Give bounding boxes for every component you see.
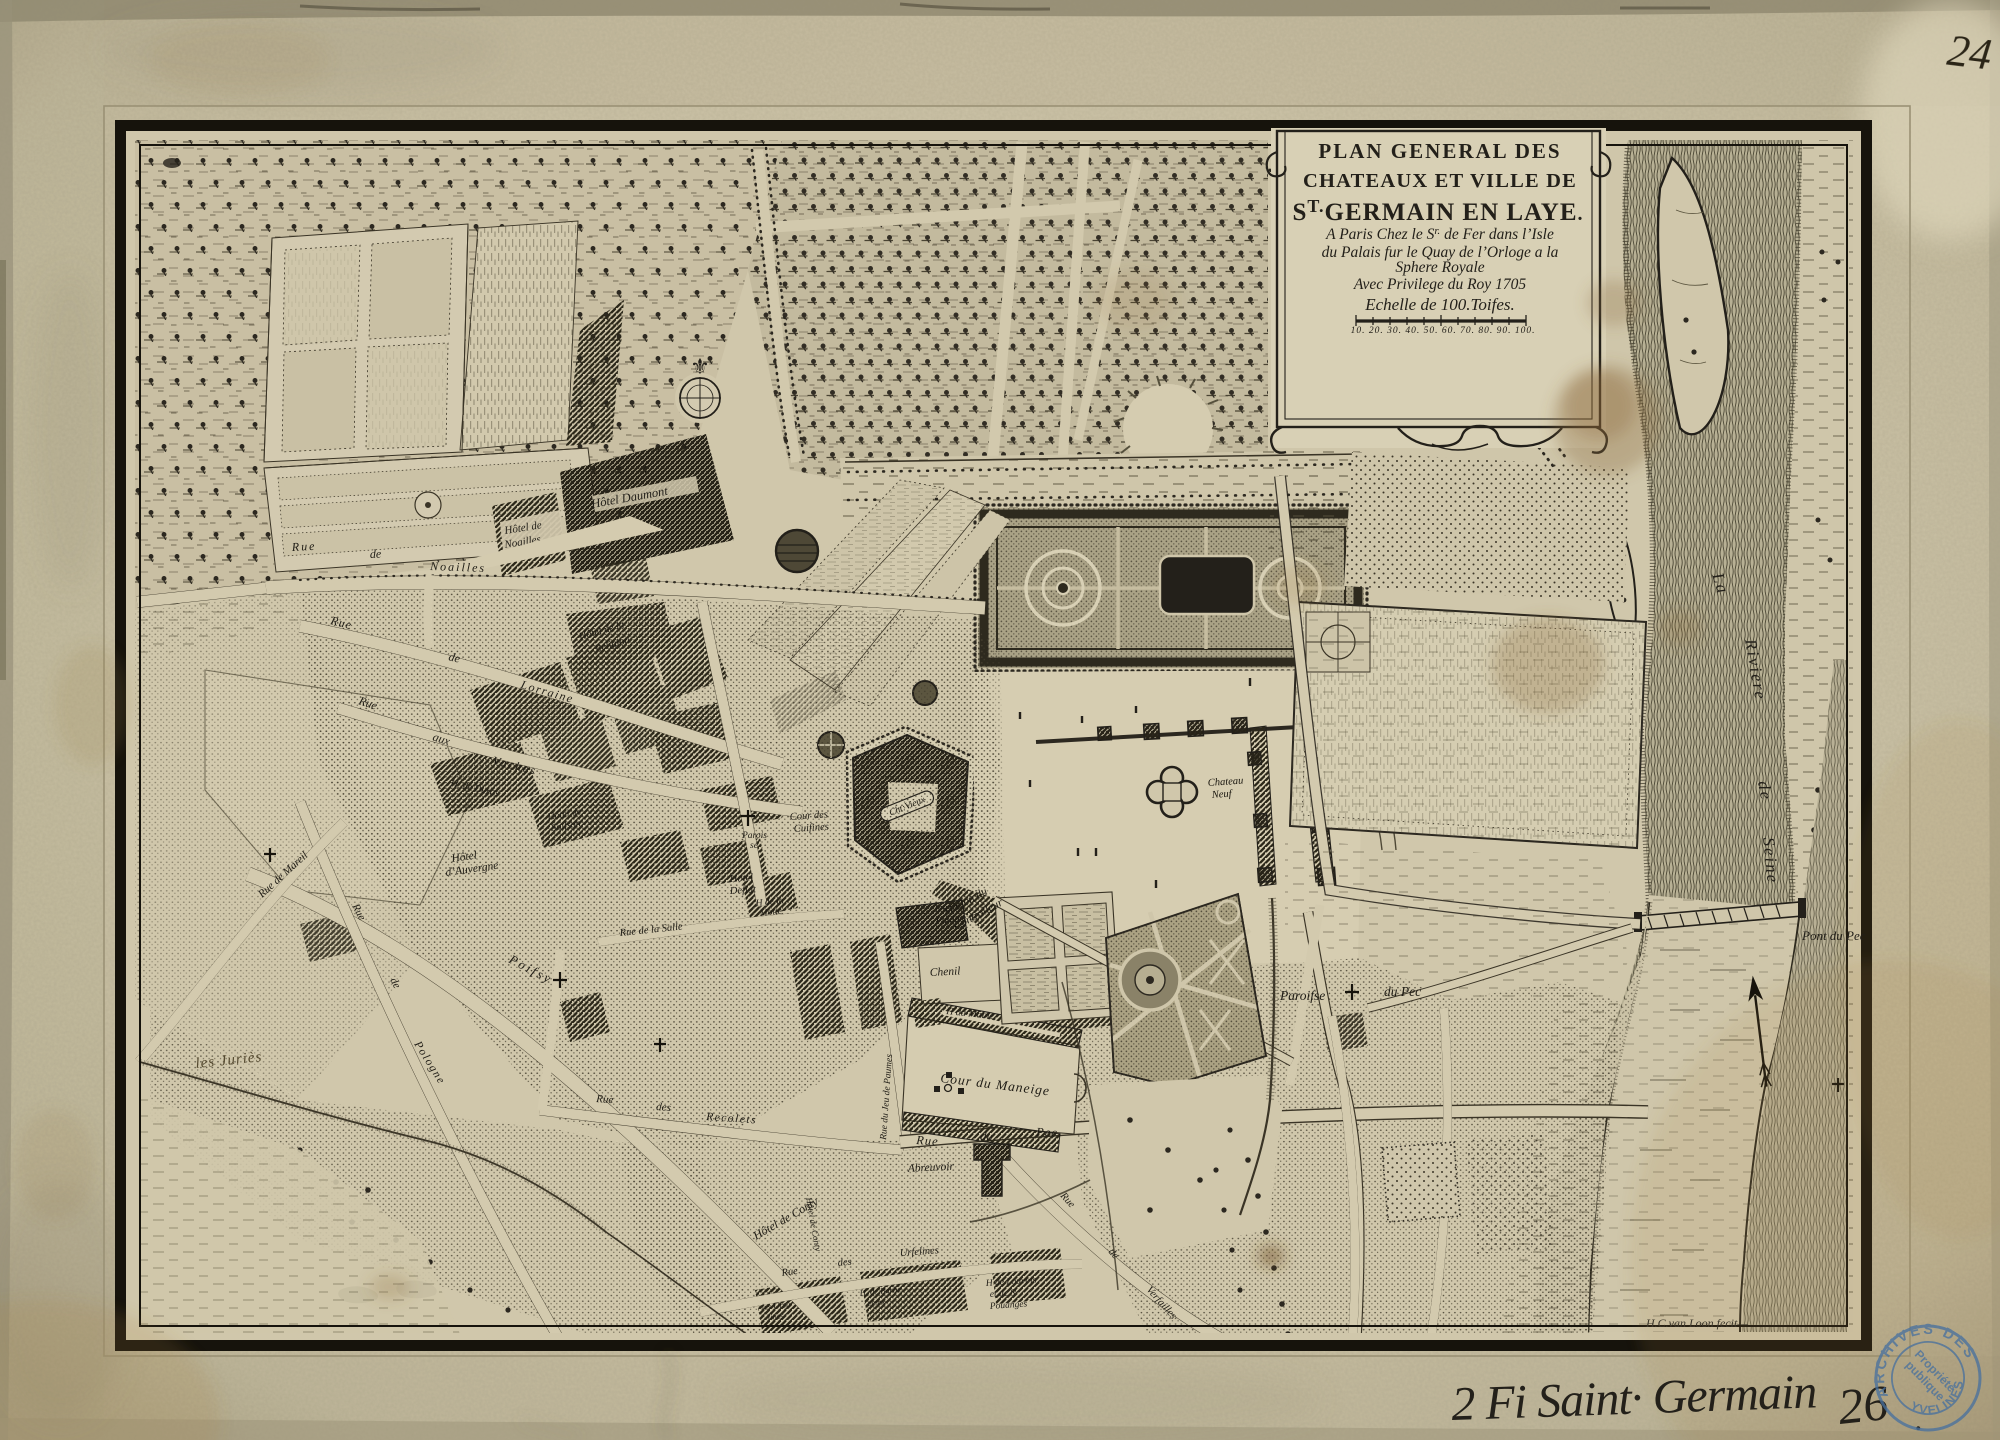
svg-text:Pec: Pec (1035, 1125, 1058, 1140)
svg-text:Paroifse: Paroifse (1279, 988, 1325, 1003)
svg-text:10. 20. 30. 40. 50. 60. 70. 80: 10. 20. 30. 40. 50. 60. 70. 80. 90. 100. (1351, 326, 1536, 336)
svg-text:PLAN GENERAL DES: PLAN GENERAL DES (1318, 139, 1561, 163)
svg-text:Noailles: Noailles (429, 559, 486, 575)
svg-text:Avec Privilege du Roy 1705: Avec Privilege du Roy 1705 (1353, 276, 1526, 293)
svg-text:du: du (980, 1129, 993, 1144)
svg-text:Rue: Rue (290, 539, 316, 554)
svg-text:Parois: Parois (741, 831, 767, 841)
svg-text:⚜: ⚜ (690, 354, 710, 379)
svg-text:zieux: zieux (866, 1296, 886, 1308)
svg-text:Rue: Rue (915, 1133, 939, 1149)
svg-text:se: se (750, 841, 758, 851)
svg-text:du Pec: du Pec (1384, 984, 1421, 999)
svg-text:Echelle de 100.Toifes.: Echelle de 100.Toifes. (1364, 295, 1515, 314)
svg-text:de: de (370, 547, 382, 561)
svg-text:Neuf: Neuf (1210, 788, 1234, 801)
svg-text:Abreuvoir: Abreuvoir (907, 1161, 955, 1175)
svg-text:A Paris Chez le Sr. de Fer dan: A Paris Chez le Sr. de Fer dans l’Isle (1325, 225, 1554, 243)
svg-text:des: des (656, 1101, 671, 1114)
svg-text:H.C.van Loon fecit—: H.C.van Loon fecit— (1645, 1316, 1748, 1330)
svg-text:Hotel: Hotel (728, 872, 753, 885)
svg-text:Pont du Pec: Pont du Pec (1801, 928, 1866, 943)
svg-text:24: 24 (1945, 25, 1995, 79)
svg-text:Sphere Royale: Sphere Royale (1395, 259, 1484, 276)
svg-text:Rue: Rue (595, 1093, 614, 1106)
svg-text:ST.GERMAIN EN LAYE.: ST.GERMAIN EN LAYE. (1292, 196, 1583, 226)
svg-text:Defiat: Defiat (728, 884, 757, 897)
svg-text:lines: lines (767, 1310, 785, 1322)
svg-text:de: de (1754, 779, 1776, 802)
svg-text:CHATEAUX ET VILLE DE: CHATEAUX ET VILLE DE (1303, 170, 1577, 192)
svg-text:des: des (837, 1257, 852, 1269)
svg-text:Chenil: Chenil (930, 965, 961, 979)
